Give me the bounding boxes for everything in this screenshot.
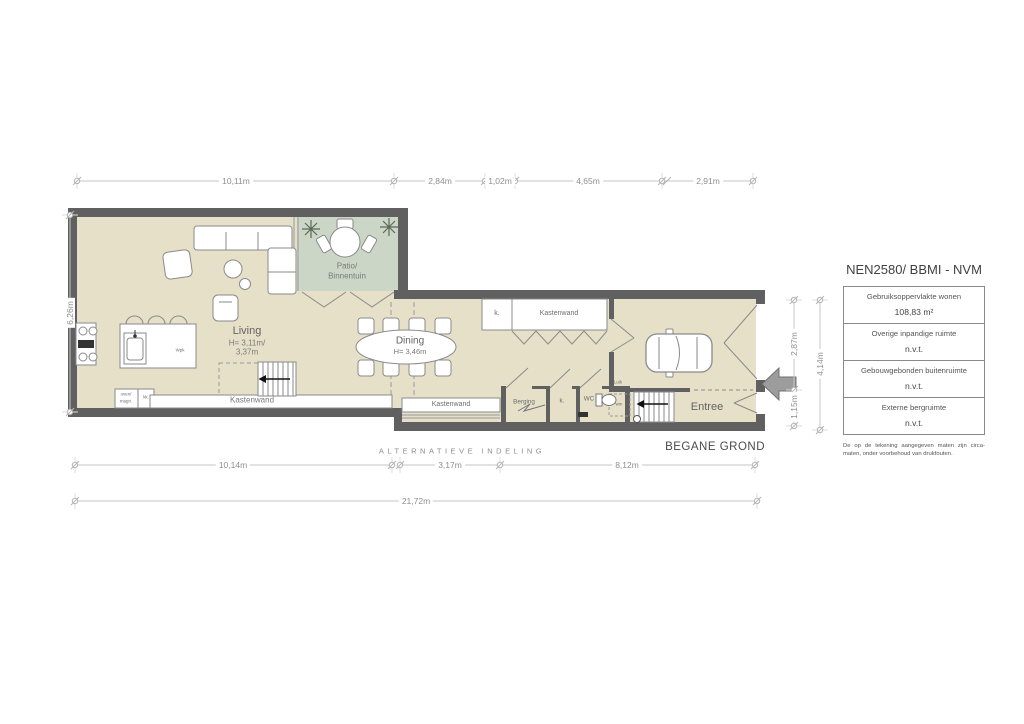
- door-openings: [506, 385, 602, 391]
- burner-icon: [79, 327, 87, 335]
- table-row: Gebruiksoppervlakte wonen 108,83 m²: [844, 287, 984, 324]
- wc-label: WC: [584, 397, 595, 404]
- variant-note: ALTERNATIEVE INDELING: [379, 447, 545, 456]
- closet-k-top-label: k.: [494, 310, 499, 318]
- wm-label: wm: [616, 403, 623, 408]
- oven-label: oven/: [121, 393, 132, 398]
- side-table-icon: [224, 260, 242, 278]
- lounge-chair-icon: [213, 295, 238, 321]
- living-label: Living: [233, 325, 262, 337]
- panel-title: NEN2580/ BBMI - NVM: [843, 262, 985, 277]
- kastenwand-top-label: Kastenwand: [540, 310, 579, 318]
- toilet-icon: [596, 394, 602, 406]
- kk-label: kk.: [143, 396, 149, 401]
- dim-top-3: 1,02m: [485, 176, 515, 186]
- living-height2-label: 3,37m: [236, 349, 258, 358]
- surface-table: Gebruiksoppervlakte wonen 108,83 m² Over…: [843, 286, 985, 435]
- dim-right-upper: 2,87m: [789, 329, 799, 359]
- armchair-icon: [162, 249, 192, 279]
- table-row: Gebouwgebonden buitenruimte n.v.t.: [844, 361, 984, 398]
- dining-label: Dining: [396, 336, 424, 347]
- entree-label: Entree: [691, 401, 723, 413]
- wpk-label: Wpk: [176, 349, 185, 354]
- disclaimer-note: De op de tekening aangegeven maten zijn …: [843, 443, 985, 459]
- patio-label: Patio/: [337, 263, 357, 272]
- patio-label2: Binnentuin: [328, 273, 366, 282]
- patio-table-icon: [330, 227, 360, 257]
- floor-title: BEGANE GROND: [665, 441, 765, 453]
- dining-chair-icon: [358, 318, 374, 334]
- dim-top-4: 4,65m: [573, 176, 603, 186]
- kastenwand-hall-label: Kastenwand: [432, 401, 471, 409]
- dim-right-total: 4,14m: [815, 349, 825, 379]
- floorplan-page: Living H= 3,11m/ 3,37m Dining H= 3,46m P…: [0, 0, 1024, 724]
- dim-top-5: 2,91m: [693, 176, 723, 186]
- dim-right-lower: 1,15m: [789, 392, 799, 422]
- closet-k-hall-label: k.: [560, 399, 565, 406]
- table-row: Externe bergruimte n.v.t.: [844, 398, 984, 434]
- luik-label: Luik: [614, 381, 622, 386]
- dim-bottom-3: 8,12m: [612, 460, 642, 470]
- dim-top-1: 10,11m: [219, 176, 253, 186]
- dim-bottom-total: 21,72m: [399, 496, 433, 506]
- dim-bottom-2: 3,17m: [435, 460, 465, 470]
- nen2580-panel: NEN2580/ BBMI - NVM Gebruiksoppervlakte …: [843, 262, 985, 459]
- stairs-living: [258, 362, 296, 396]
- table-row: Overige inpandige ruimte n.v.t.: [844, 324, 984, 361]
- dining-height-label: H= 3,46m: [394, 348, 427, 356]
- sofa-icon: [194, 226, 292, 250]
- dim-left: 6,26m: [65, 298, 75, 328]
- car-icon: [646, 329, 712, 377]
- dim-bottom-1: 10,14m: [216, 460, 250, 470]
- magn-label: magn.: [120, 400, 132, 405]
- berging-label: Berging: [513, 400, 535, 407]
- kastenwand-living-label: Kastenwand: [230, 397, 274, 406]
- stairs-entree: [634, 392, 675, 423]
- dim-top-2: 2,84m: [425, 176, 455, 186]
